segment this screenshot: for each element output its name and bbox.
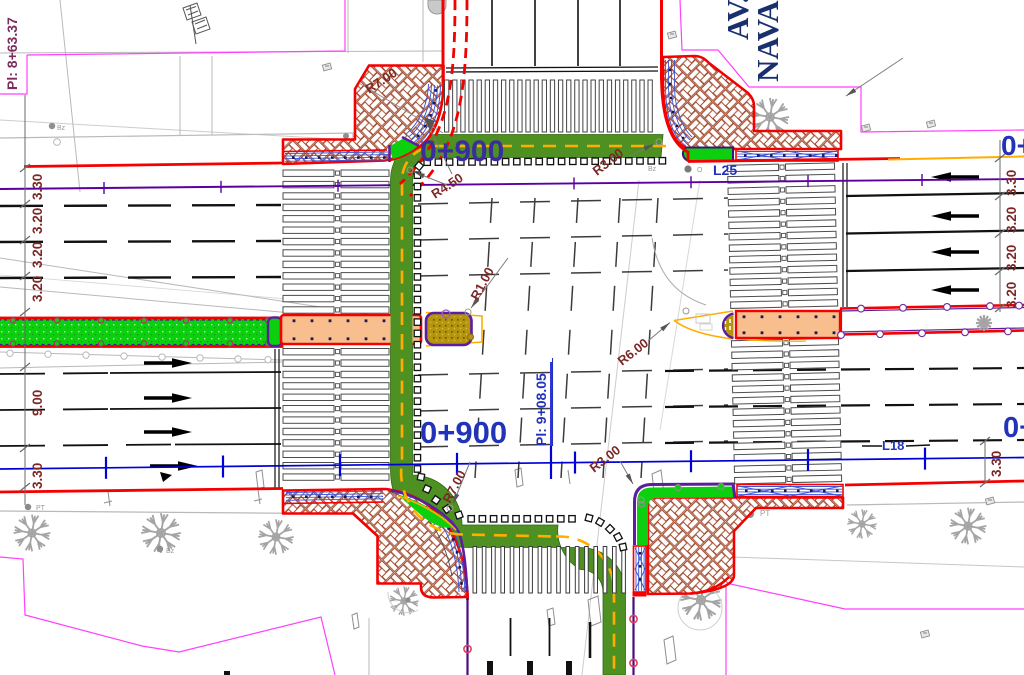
svg-text:0+: 0+ <box>1001 130 1024 161</box>
svg-text:Pl: 8+63.37: Pl: 8+63.37 <box>4 17 20 90</box>
svg-text:Bz: Bz <box>166 548 175 555</box>
svg-text:3.30: 3.30 <box>1004 170 1019 196</box>
svg-text:Bz: Bz <box>648 166 657 173</box>
svg-text:3.30: 3.30 <box>30 174 45 200</box>
svg-text:NAVAL: NAVAL <box>750 0 785 82</box>
svg-text:Bz: Bz <box>57 125 66 132</box>
svg-text:0+900: 0+900 <box>420 415 507 450</box>
svg-text:3.30: 3.30 <box>30 463 45 489</box>
svg-text:0+: 0+ <box>1003 412 1024 444</box>
svg-text:3.20: 3.20 <box>1004 245 1019 271</box>
svg-text:L25: L25 <box>713 162 737 178</box>
svg-text:3.30: 3.30 <box>989 451 1004 477</box>
svg-text:PT: PT <box>36 505 46 512</box>
svg-text:3.20: 3.20 <box>30 242 45 268</box>
svg-text:3.20: 3.20 <box>1004 207 1019 233</box>
svg-text:Pl: 9+08.05: Pl: 9+08.05 <box>533 373 549 446</box>
svg-text:3.20: 3.20 <box>30 208 45 234</box>
svg-text:3.20: 3.20 <box>1004 282 1019 308</box>
svg-text:PT: PT <box>760 509 770 518</box>
svg-text:L18: L18 <box>882 438 904 453</box>
svg-text:3.20: 3.20 <box>30 276 45 302</box>
svg-text:9.00: 9.00 <box>30 390 45 416</box>
svg-text:O: O <box>697 167 703 174</box>
svg-text:0+900: 0+900 <box>420 135 504 168</box>
